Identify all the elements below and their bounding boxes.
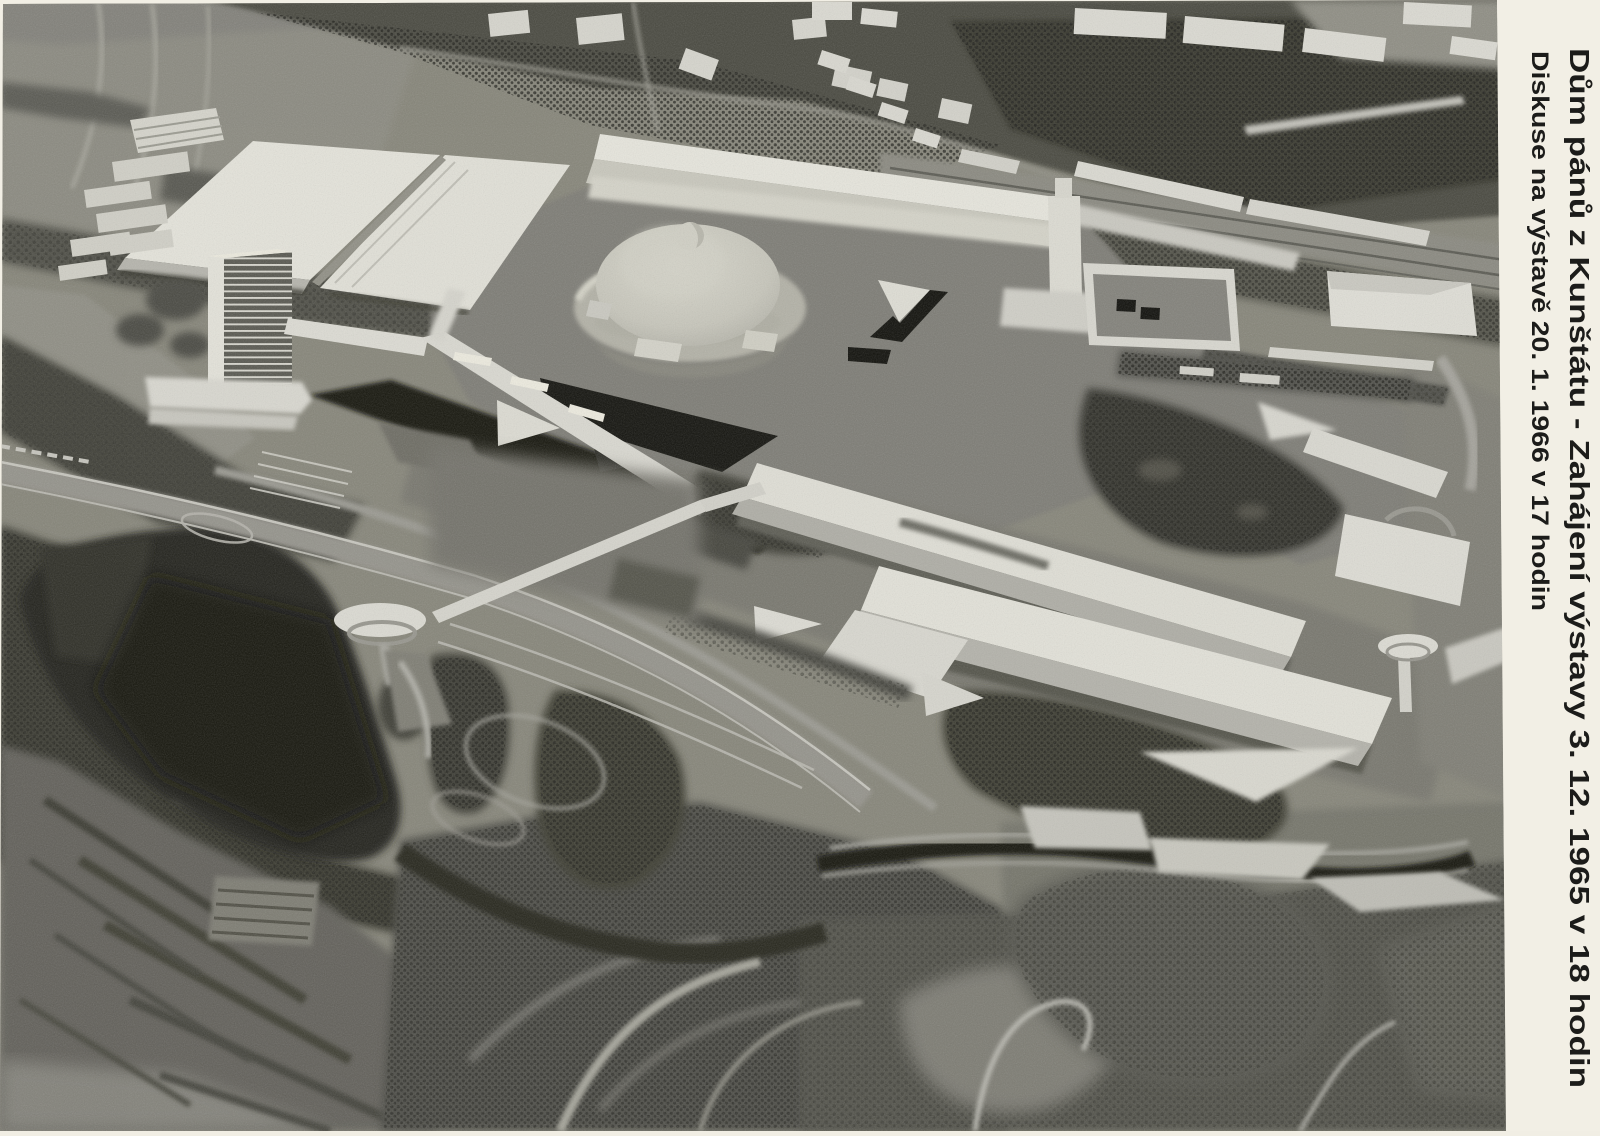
svg-text:Diskuse na výstavě 20. 1. 1966: Diskuse na výstavě 20. 1. 1966 v 17 hodi… (1526, 51, 1553, 611)
svg-text:Dům pánů z Kunštátu - Zahájení: Dům pánů z Kunštátu - Zahájení výstavy 3… (1564, 48, 1595, 1088)
